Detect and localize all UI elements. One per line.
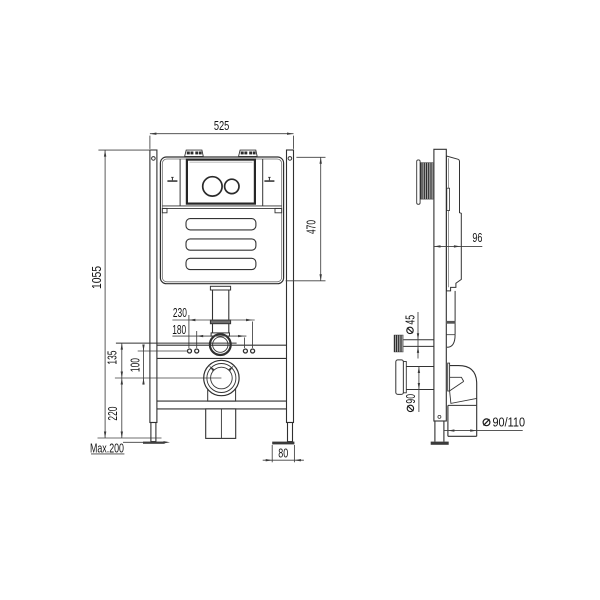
svg-text:96: 96	[472, 230, 482, 245]
svg-text:220: 220	[105, 407, 120, 421]
svg-text:230: 230	[173, 305, 187, 320]
svg-text:80: 80	[278, 446, 288, 461]
svg-text:100: 100	[128, 358, 143, 372]
svg-text:45: 45	[403, 315, 418, 325]
svg-text:525: 525	[214, 118, 230, 133]
svg-text:90: 90	[403, 394, 418, 404]
svg-text:Max.200: Max.200	[90, 440, 124, 455]
svg-text:135: 135	[104, 351, 119, 365]
svg-text:180: 180	[172, 322, 186, 337]
svg-text:470: 470	[303, 220, 318, 234]
svg-text:1055: 1055	[89, 266, 104, 289]
svg-text:90/110: 90/110	[493, 415, 526, 430]
